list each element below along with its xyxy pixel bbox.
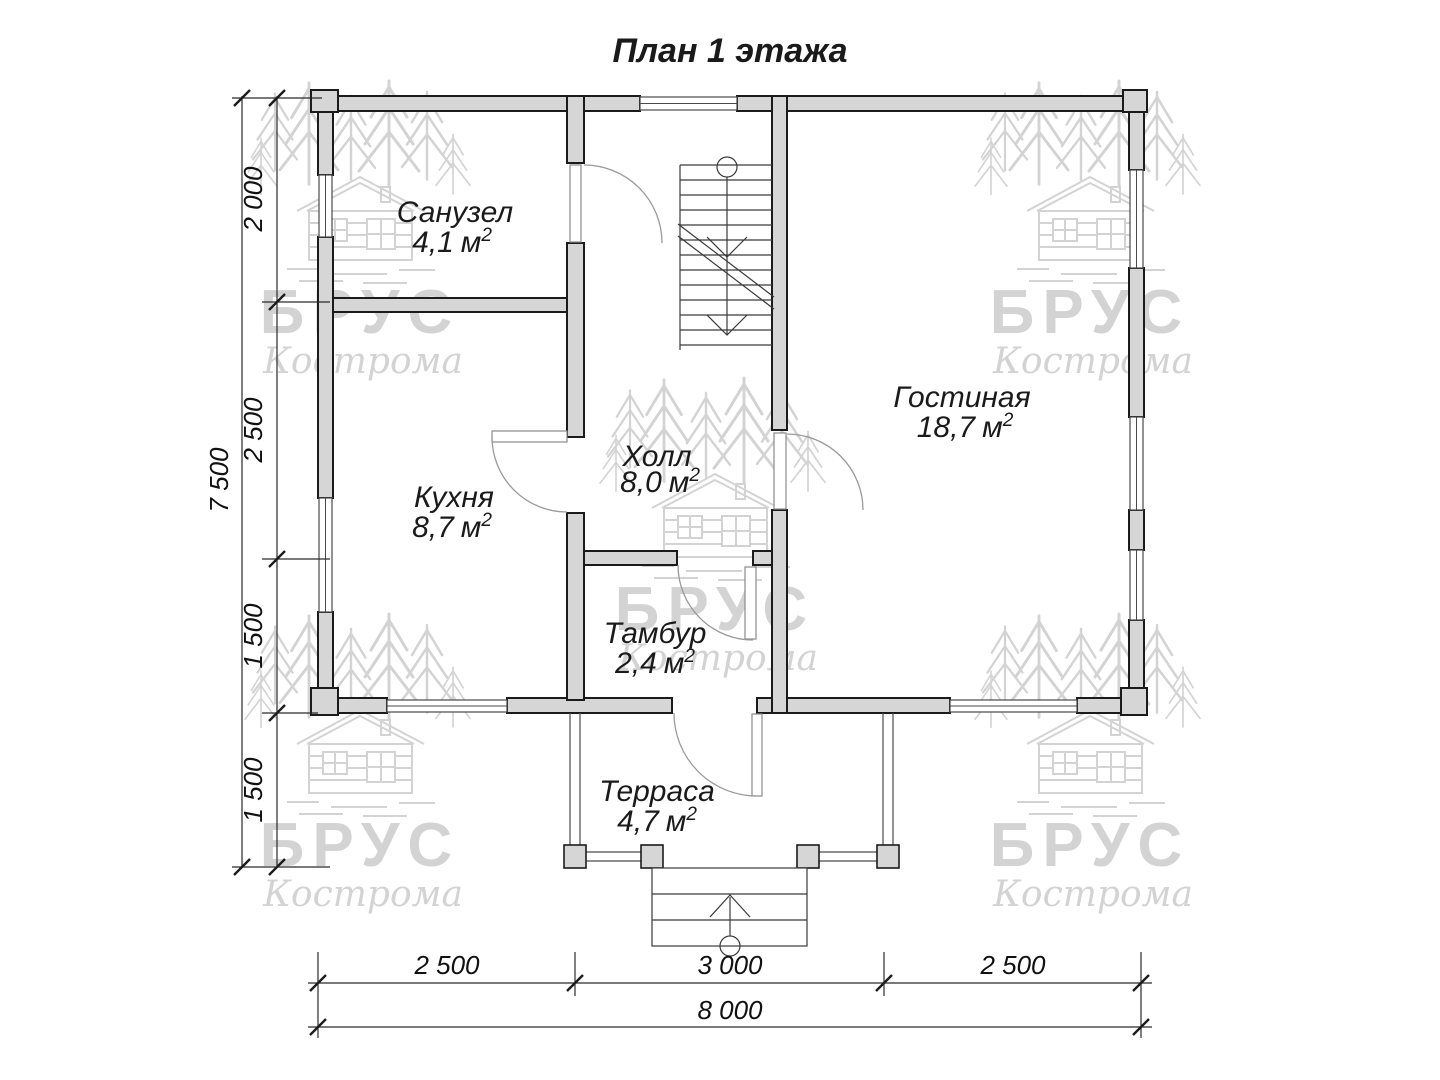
corner-post-top-right (1123, 90, 1147, 112)
door-arc-kitchen (492, 437, 567, 512)
wall-interior-v1-b (567, 243, 584, 437)
door-leaf-bathroom (570, 165, 581, 242)
entry-steps (652, 868, 807, 956)
wall-right-b (1129, 268, 1144, 417)
wall-right-c (1129, 510, 1144, 550)
dim-left-segment-2: 2 500 (238, 397, 268, 464)
stair-start-marker (717, 157, 737, 177)
wall-interior-v1-a (567, 96, 584, 163)
room-area-hall: 8,0м2 (620, 465, 700, 499)
terrace-post-right (877, 845, 899, 868)
door-leaf-terrace (752, 714, 762, 796)
door-arc-bathroom (584, 165, 662, 243)
watermarks (245, 81, 1200, 915)
room-area-livingroom: 18,7м2 (917, 410, 1014, 444)
room-label-bathroom: Санузел (397, 196, 513, 229)
terrace-post-steps-left (641, 845, 663, 868)
terrace-post-left (564, 845, 586, 868)
terrace (564, 713, 899, 956)
door-leaf-livingroom (774, 433, 786, 509)
wall-interior-v2-b (772, 510, 787, 713)
watermark-bottom-left (245, 614, 470, 915)
dim-left-total: 7 500 (204, 447, 234, 513)
wall-left-b (318, 237, 333, 498)
dim-left-segment-1: 2 000 (238, 166, 268, 233)
corner-post-bottom-right (1121, 688, 1147, 715)
wall-tambour-top-jamb (753, 551, 772, 565)
dimensions-bottom: 2 500 3 000 2 500 8 000 (308, 950, 1152, 1038)
dim-left-segment-3: 1 500 (238, 603, 268, 669)
room-area-tambour: 2,4м2 (614, 646, 695, 680)
dim-bottom-segment-2: 3 000 (697, 950, 763, 980)
corner-post-bottom-left (311, 688, 338, 715)
wall-top-left-segment (318, 96, 640, 111)
wall-interior-v2-a (772, 96, 787, 430)
staircase (678, 157, 774, 350)
room-label-terrace: Терраса (599, 775, 715, 808)
dim-bottom-total: 8 000 (697, 995, 763, 1025)
door-leaf-tambour (745, 567, 756, 639)
room-area-terrace: 4,7м2 (617, 804, 697, 838)
wall-interior-v1-c (567, 513, 584, 700)
floor-plan-drawing: БРУС Кострома План 1 этажа (0, 0, 1440, 1080)
door-leaf-kitchen (492, 431, 567, 442)
stair-treads (680, 165, 772, 345)
watermark-top-right (975, 81, 1200, 382)
dim-bottom-segment-3: 2 500 (979, 950, 1046, 980)
floor-plan-page: БРУС Кострома План 1 этажа (0, 0, 1440, 1080)
dim-left-segment-4: 1 500 (238, 757, 268, 823)
dim-bottom-segment-1: 2 500 (413, 950, 480, 980)
wall-bottom-b (507, 698, 672, 713)
stair-break-line (678, 224, 774, 309)
room-area-bathroom: 4,1м2 (412, 225, 492, 259)
room-labels: Санузел 4,1м2 Гостиная 18,7м2 Кухня 8,7м… (397, 196, 1031, 838)
terrace-post-steps-right (797, 845, 819, 868)
room-area-kitchen: 8,7м2 (412, 510, 492, 544)
watermark-bottom-right (975, 614, 1200, 915)
page-title: План 1 этажа (612, 32, 847, 70)
corner-post-top-left (311, 90, 338, 112)
wall-bathroom-bottom (333, 298, 567, 312)
wall-tambour-top (584, 551, 677, 565)
wall-top-right-segment (737, 96, 1144, 111)
